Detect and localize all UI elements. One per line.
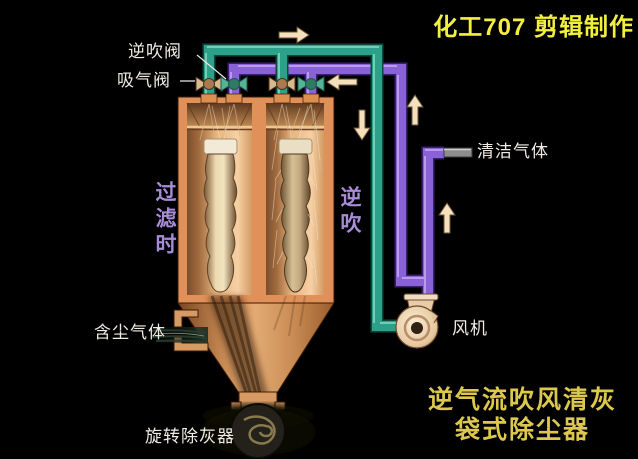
reverse-blow-valve-right bbox=[298, 77, 324, 91]
label-suction-valve: 吸气阀 bbox=[117, 72, 171, 91]
bag-left-body bbox=[204, 154, 237, 292]
label-rotary-ash-remover: 旋转除灰器 bbox=[145, 428, 235, 447]
caption-line1: 逆气流吹风清灰 bbox=[415, 386, 630, 416]
fan-hub bbox=[411, 322, 423, 334]
arrow-up-icon bbox=[407, 95, 423, 125]
baghouse-diagram: 化工707 剪辑制作 逆吹阀 吸气阀 过滤时 逆吹 清洁气体 风机 含尘气体 旋… bbox=[0, 0, 638, 459]
watermark-credit: 化工707 剪辑制作 bbox=[433, 7, 634, 42]
bag-right-body bbox=[281, 154, 311, 292]
label-fan: 风机 bbox=[452, 320, 488, 339]
label-clean-gas: 清洁气体 bbox=[477, 143, 549, 162]
suction-valve-right bbox=[269, 77, 295, 91]
reverse-blow-valve-left bbox=[221, 77, 247, 91]
arrow-right-icon bbox=[279, 27, 309, 43]
rotary-ash-remover bbox=[231, 404, 285, 458]
label-reverse-blow-side: 逆吹 bbox=[335, 186, 365, 238]
caption-title: 逆气流吹风清灰 袋式除尘器 bbox=[415, 386, 630, 446]
caption-line2: 袋式除尘器 bbox=[415, 416, 630, 446]
filter-bag-left bbox=[204, 139, 237, 292]
arrow-up-icon bbox=[439, 203, 455, 233]
bag-left-cap bbox=[204, 139, 237, 154]
bag-right-cap bbox=[279, 139, 312, 154]
arrow-down-icon bbox=[354, 110, 370, 140]
fan bbox=[396, 294, 438, 348]
fan-flange-rim bbox=[404, 294, 438, 300]
label-reverse-blow-valve: 逆吹阀 bbox=[128, 43, 182, 62]
label-dusty-gas: 含尘气体 bbox=[94, 324, 166, 343]
label-filtering-side: 过滤时 bbox=[150, 181, 180, 259]
filter-vessel bbox=[178, 97, 334, 303]
arrow-left-icon bbox=[327, 74, 357, 90]
suction-valve-left bbox=[196, 77, 222, 91]
